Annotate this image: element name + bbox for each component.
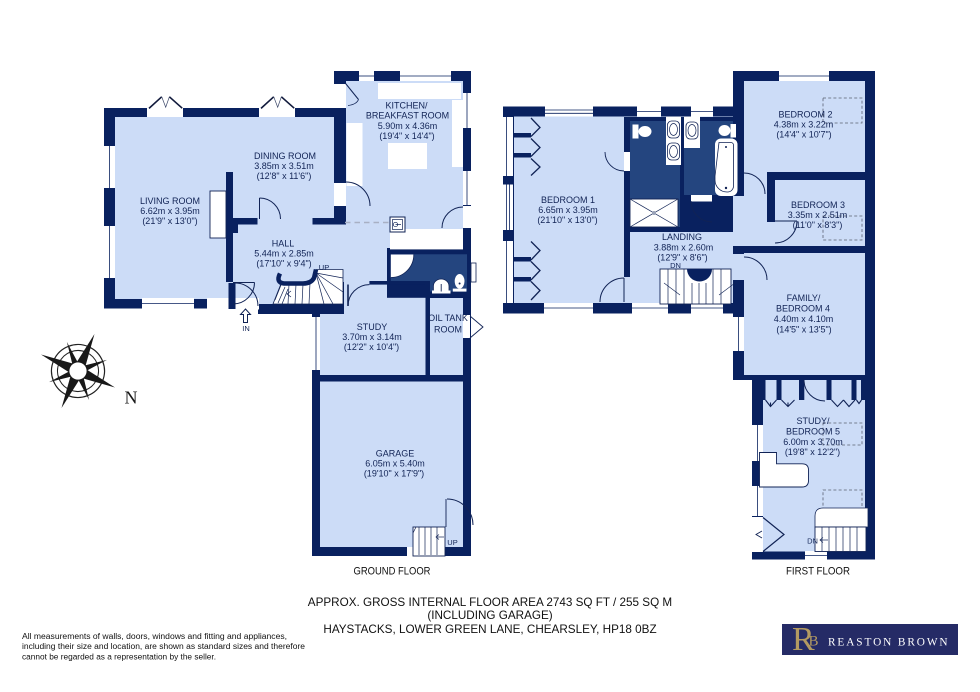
svg-text:APPROX. GROSS INTERNAL FLOOR A: APPROX. GROSS INTERNAL FLOOR AREA 2743 S… [308,596,672,609]
svg-text:BEDROOM 2: BEDROOM 2 [778,110,832,120]
svg-text:IN: IN [242,324,250,333]
svg-text:4.40m x 4.10m: 4.40m x 4.10m [774,314,834,324]
svg-text:4.38m x 3.22m: 4.38m x 3.22m [774,120,834,130]
svg-text:(12'9" x 8'6"): (12'9" x 8'6") [657,253,707,263]
svg-text:GARAGE: GARAGE [376,449,415,459]
svg-text:BEDROOM 4: BEDROOM 4 [776,304,830,314]
svg-text:OIL TANK: OIL TANK [428,313,468,323]
svg-text:BEDROOM 3: BEDROOM 3 [791,200,845,210]
svg-text:5.44m x 2.85m: 5.44m x 2.85m [254,249,314,259]
svg-text:FAMILY/: FAMILY/ [787,293,821,303]
svg-text:LIVING ROOM: LIVING ROOM [140,196,200,206]
svg-text:(19'8" x 12'2"): (19'8" x 12'2") [785,447,840,457]
svg-text:BEDROOM 1: BEDROOM 1 [541,195,595,205]
svg-text:5.90m x 4.36m: 5.90m x 4.36m [378,121,438,131]
svg-text:(INCLUDING GARAGE): (INCLUDING GARAGE) [427,609,552,622]
svg-text:DN: DN [807,537,818,546]
svg-text:3.85m x 3.51m: 3.85m x 3.51m [254,161,314,171]
svg-text:ROOM: ROOM [434,325,462,335]
svg-text:6.05m x 5.40m: 6.05m x 5.40m [365,459,425,469]
svg-text:HAYSTACKS, LOWER GREEN LANE, C: HAYSTACKS, LOWER GREEN LANE, CHEARSLEY, … [323,623,656,636]
svg-text:(12'2" x 10'4"): (12'2" x 10'4") [344,342,399,352]
svg-text:(17'10" x 9'4"): (17'10" x 9'4") [256,259,311,269]
svg-text:6.62m x 3.95m: 6.62m x 3.95m [140,206,200,216]
svg-text:cannot be regarded as a repres: cannot be regarded as a representation b… [22,653,216,662]
svg-text:6.65m x 3.95m: 6.65m x 3.95m [538,205,598,215]
svg-text:REASTON BROWN: REASTON BROWN [828,637,949,649]
svg-text:BEDROOM 5: BEDROOM 5 [786,427,840,437]
svg-text:including their size and locat: including their size and location, are s… [22,642,306,651]
svg-text:(11'0" x 8'3"): (11'0" x 8'3") [793,220,843,230]
svg-text:All measurements of walls, doo: All measurements of walls, doors, window… [22,632,287,641]
svg-text:FIRST FLOOR: FIRST FLOOR [786,566,850,578]
svg-text:UP: UP [447,538,457,547]
svg-text:3.70m x 3.14m: 3.70m x 3.14m [342,332,402,342]
svg-text:(14'4" x 10'7"): (14'4" x 10'7") [776,130,831,140]
svg-text:LANDING: LANDING [662,232,702,242]
svg-text:B: B [809,634,819,650]
svg-text:DINING ROOM: DINING ROOM [254,151,316,161]
svg-text:3.88m x 2.60m: 3.88m x 2.60m [654,243,714,253]
svg-text:6.00m x 3.70m: 6.00m x 3.70m [783,437,843,447]
svg-text:(14'5" x 13'5"): (14'5" x 13'5") [776,325,831,335]
svg-text:STUDY/: STUDY/ [796,416,830,426]
svg-text:DN: DN [670,261,681,270]
svg-text:(12'8" x 11'6"): (12'8" x 11'6") [257,171,312,181]
svg-text:GROUND FLOOR: GROUND FLOOR [354,566,431,578]
svg-text:UP: UP [319,263,329,272]
svg-text:BREAKFAST ROOM: BREAKFAST ROOM [366,111,449,121]
svg-text:KITCHEN/: KITCHEN/ [385,101,428,111]
svg-text:3.35m x 2.51m: 3.35m x 2.51m [788,210,848,220]
svg-text:N: N [125,388,138,408]
svg-text:STUDY: STUDY [357,322,388,332]
svg-text:(19'4" x 14'4"): (19'4" x 14'4") [379,131,434,141]
svg-text:(21'9" x 13'0"): (21'9" x 13'0") [142,216,197,226]
svg-text:HALL: HALL [272,239,295,249]
svg-text:(21'10" x 13'0"): (21'10" x 13'0") [537,215,597,225]
svg-text:(19'10" x 17'9"): (19'10" x 17'9") [364,469,424,479]
